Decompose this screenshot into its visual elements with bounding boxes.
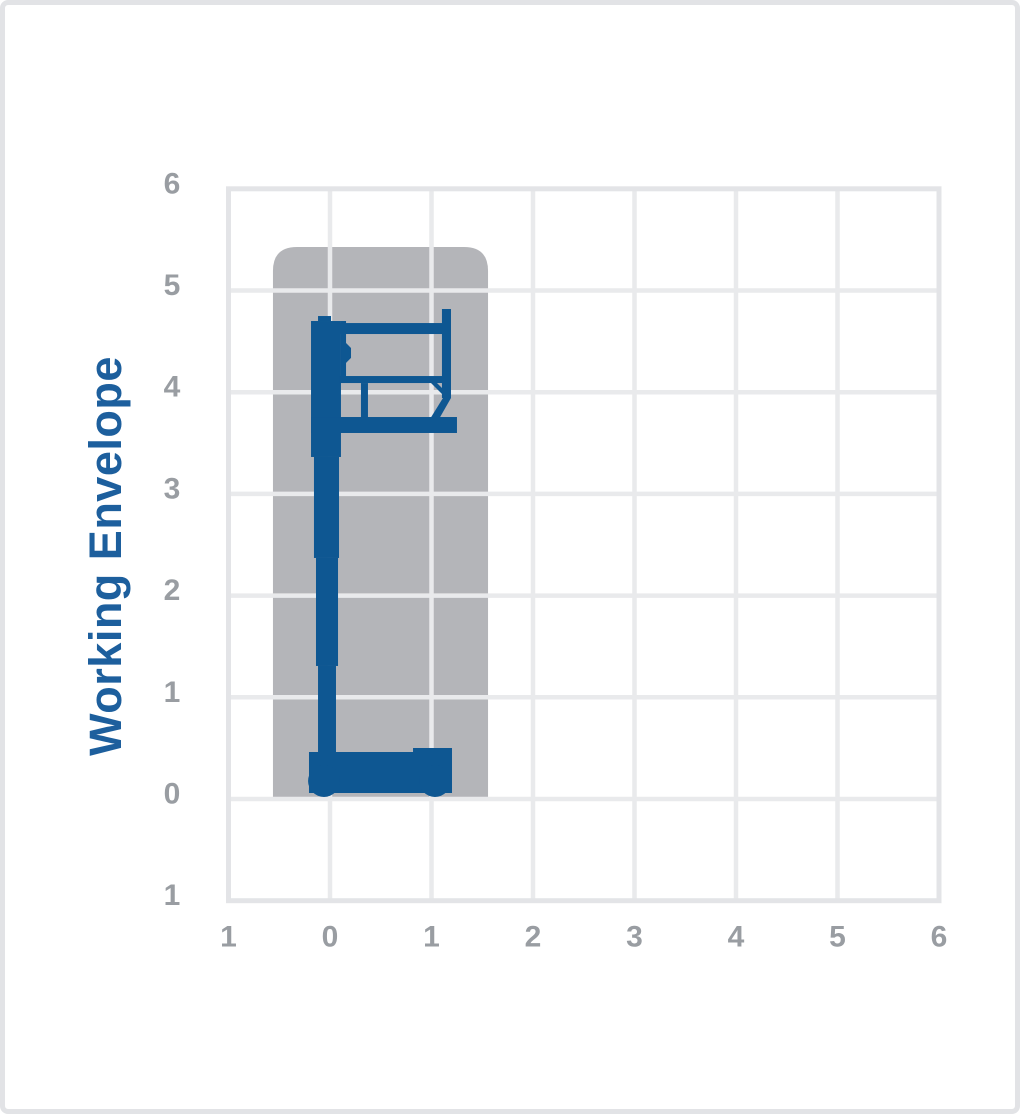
rail-connector xyxy=(361,383,368,418)
x-tick-labels: 10123456 xyxy=(220,921,947,954)
x-tick-label: 3 xyxy=(626,921,643,954)
wheel-right xyxy=(419,765,451,797)
platform-top-rail xyxy=(335,323,446,334)
x-tick-label: 1 xyxy=(423,921,440,954)
platform-mid-rail xyxy=(339,376,445,383)
y-tick-label: 2 xyxy=(164,574,181,607)
x-tick-label: 4 xyxy=(728,921,745,954)
chart-canvas: 1012345610123456 xyxy=(5,5,1015,1109)
y-tick-label: 6 xyxy=(164,167,181,200)
y-tick-label: 4 xyxy=(164,371,181,404)
mast-section-3 xyxy=(316,558,338,666)
x-tick-label: 0 xyxy=(322,921,339,954)
mast-section-upper xyxy=(311,321,341,457)
chart-card: 1012345610123456 Working Envelope xyxy=(0,0,1020,1114)
y-tick-label: 3 xyxy=(164,472,181,505)
mast-section-4 xyxy=(318,666,336,752)
wheel-left xyxy=(308,765,340,797)
y-axis-title: Working Envelope xyxy=(80,356,132,756)
y-tick-label: 1 xyxy=(164,676,181,709)
platform-deck xyxy=(311,417,457,433)
x-tick-label: 6 xyxy=(931,921,948,954)
x-tick-label: 5 xyxy=(829,921,846,954)
mast-head-cap xyxy=(318,316,331,321)
mast-section-2 xyxy=(314,457,339,558)
x-tick-label: 2 xyxy=(525,921,542,954)
y-tick-label: 0 xyxy=(164,778,181,811)
x-tick-label: 1 xyxy=(220,921,237,954)
platform-end-post xyxy=(442,309,451,398)
y-tick-labels: 10123456 xyxy=(164,167,181,912)
y-tick-label: 1 xyxy=(164,879,181,912)
y-tick-label: 5 xyxy=(164,269,181,302)
